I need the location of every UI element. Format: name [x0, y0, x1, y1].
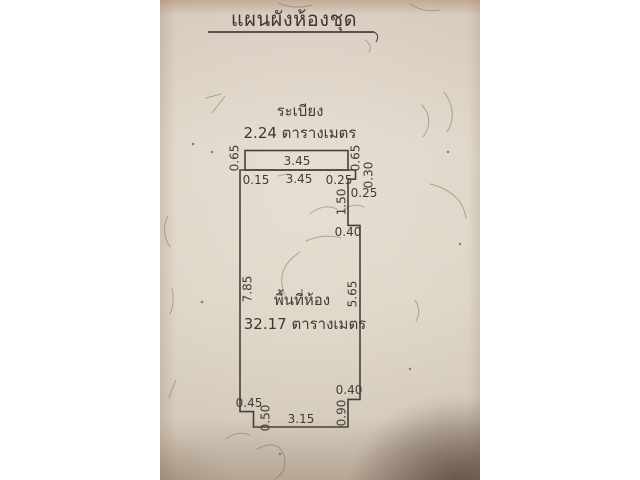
dim-left-height: 7.85: [241, 276, 255, 303]
dim-bottom-right-in: 0.40: [336, 383, 363, 397]
dim-bottom-left-height: 0.50: [259, 405, 273, 432]
dim-top-width: 3.45: [286, 172, 313, 186]
page-title: แผนผังห้องชุด: [231, 7, 357, 32]
dim-notch-out: 0.40: [335, 225, 362, 239]
dim-right-height: 5.65: [346, 281, 360, 308]
title-underline: [208, 32, 378, 42]
dim-top-right: 0.25: [326, 173, 353, 187]
balcony-area-label: 2.24 ตารางเมตร: [244, 124, 357, 142]
dim-balcony-height-left: 0.65: [228, 145, 242, 172]
dim-top-left: 0.15: [243, 173, 270, 187]
dim-balcony-width: 3.45: [284, 154, 311, 168]
pencil-marks: [164, 3, 466, 479]
balcony-label: ระเบียง: [277, 102, 324, 120]
floor-plan-drawing: แผนผังห้องชุด ระเบียง 2.24 ตารางเมตร 3.4…: [160, 0, 480, 480]
dim-bottom-width: 3.15: [288, 412, 315, 426]
floor-plan-photo: แผนผังห้องชุด ระเบียง 2.24 ตารางเมตร 3.4…: [160, 0, 480, 480]
dim-recess-height: 1.50: [335, 189, 349, 216]
dim-notch-down: 0.30: [362, 162, 376, 189]
dim-balcony-height-right: 0.65: [349, 145, 363, 172]
room-area-label: 32.17 ตารางเมตร: [244, 315, 367, 333]
screenshot-canvas: แผนผังห้องชุด ระเบียง 2.24 ตารางเมตร 3.4…: [0, 0, 640, 480]
dim-notch-in: 0.25: [351, 186, 378, 200]
room-label: พื้นที่ห้อง: [274, 289, 330, 309]
dim-bottom-right-height: 0.90: [335, 400, 349, 427]
